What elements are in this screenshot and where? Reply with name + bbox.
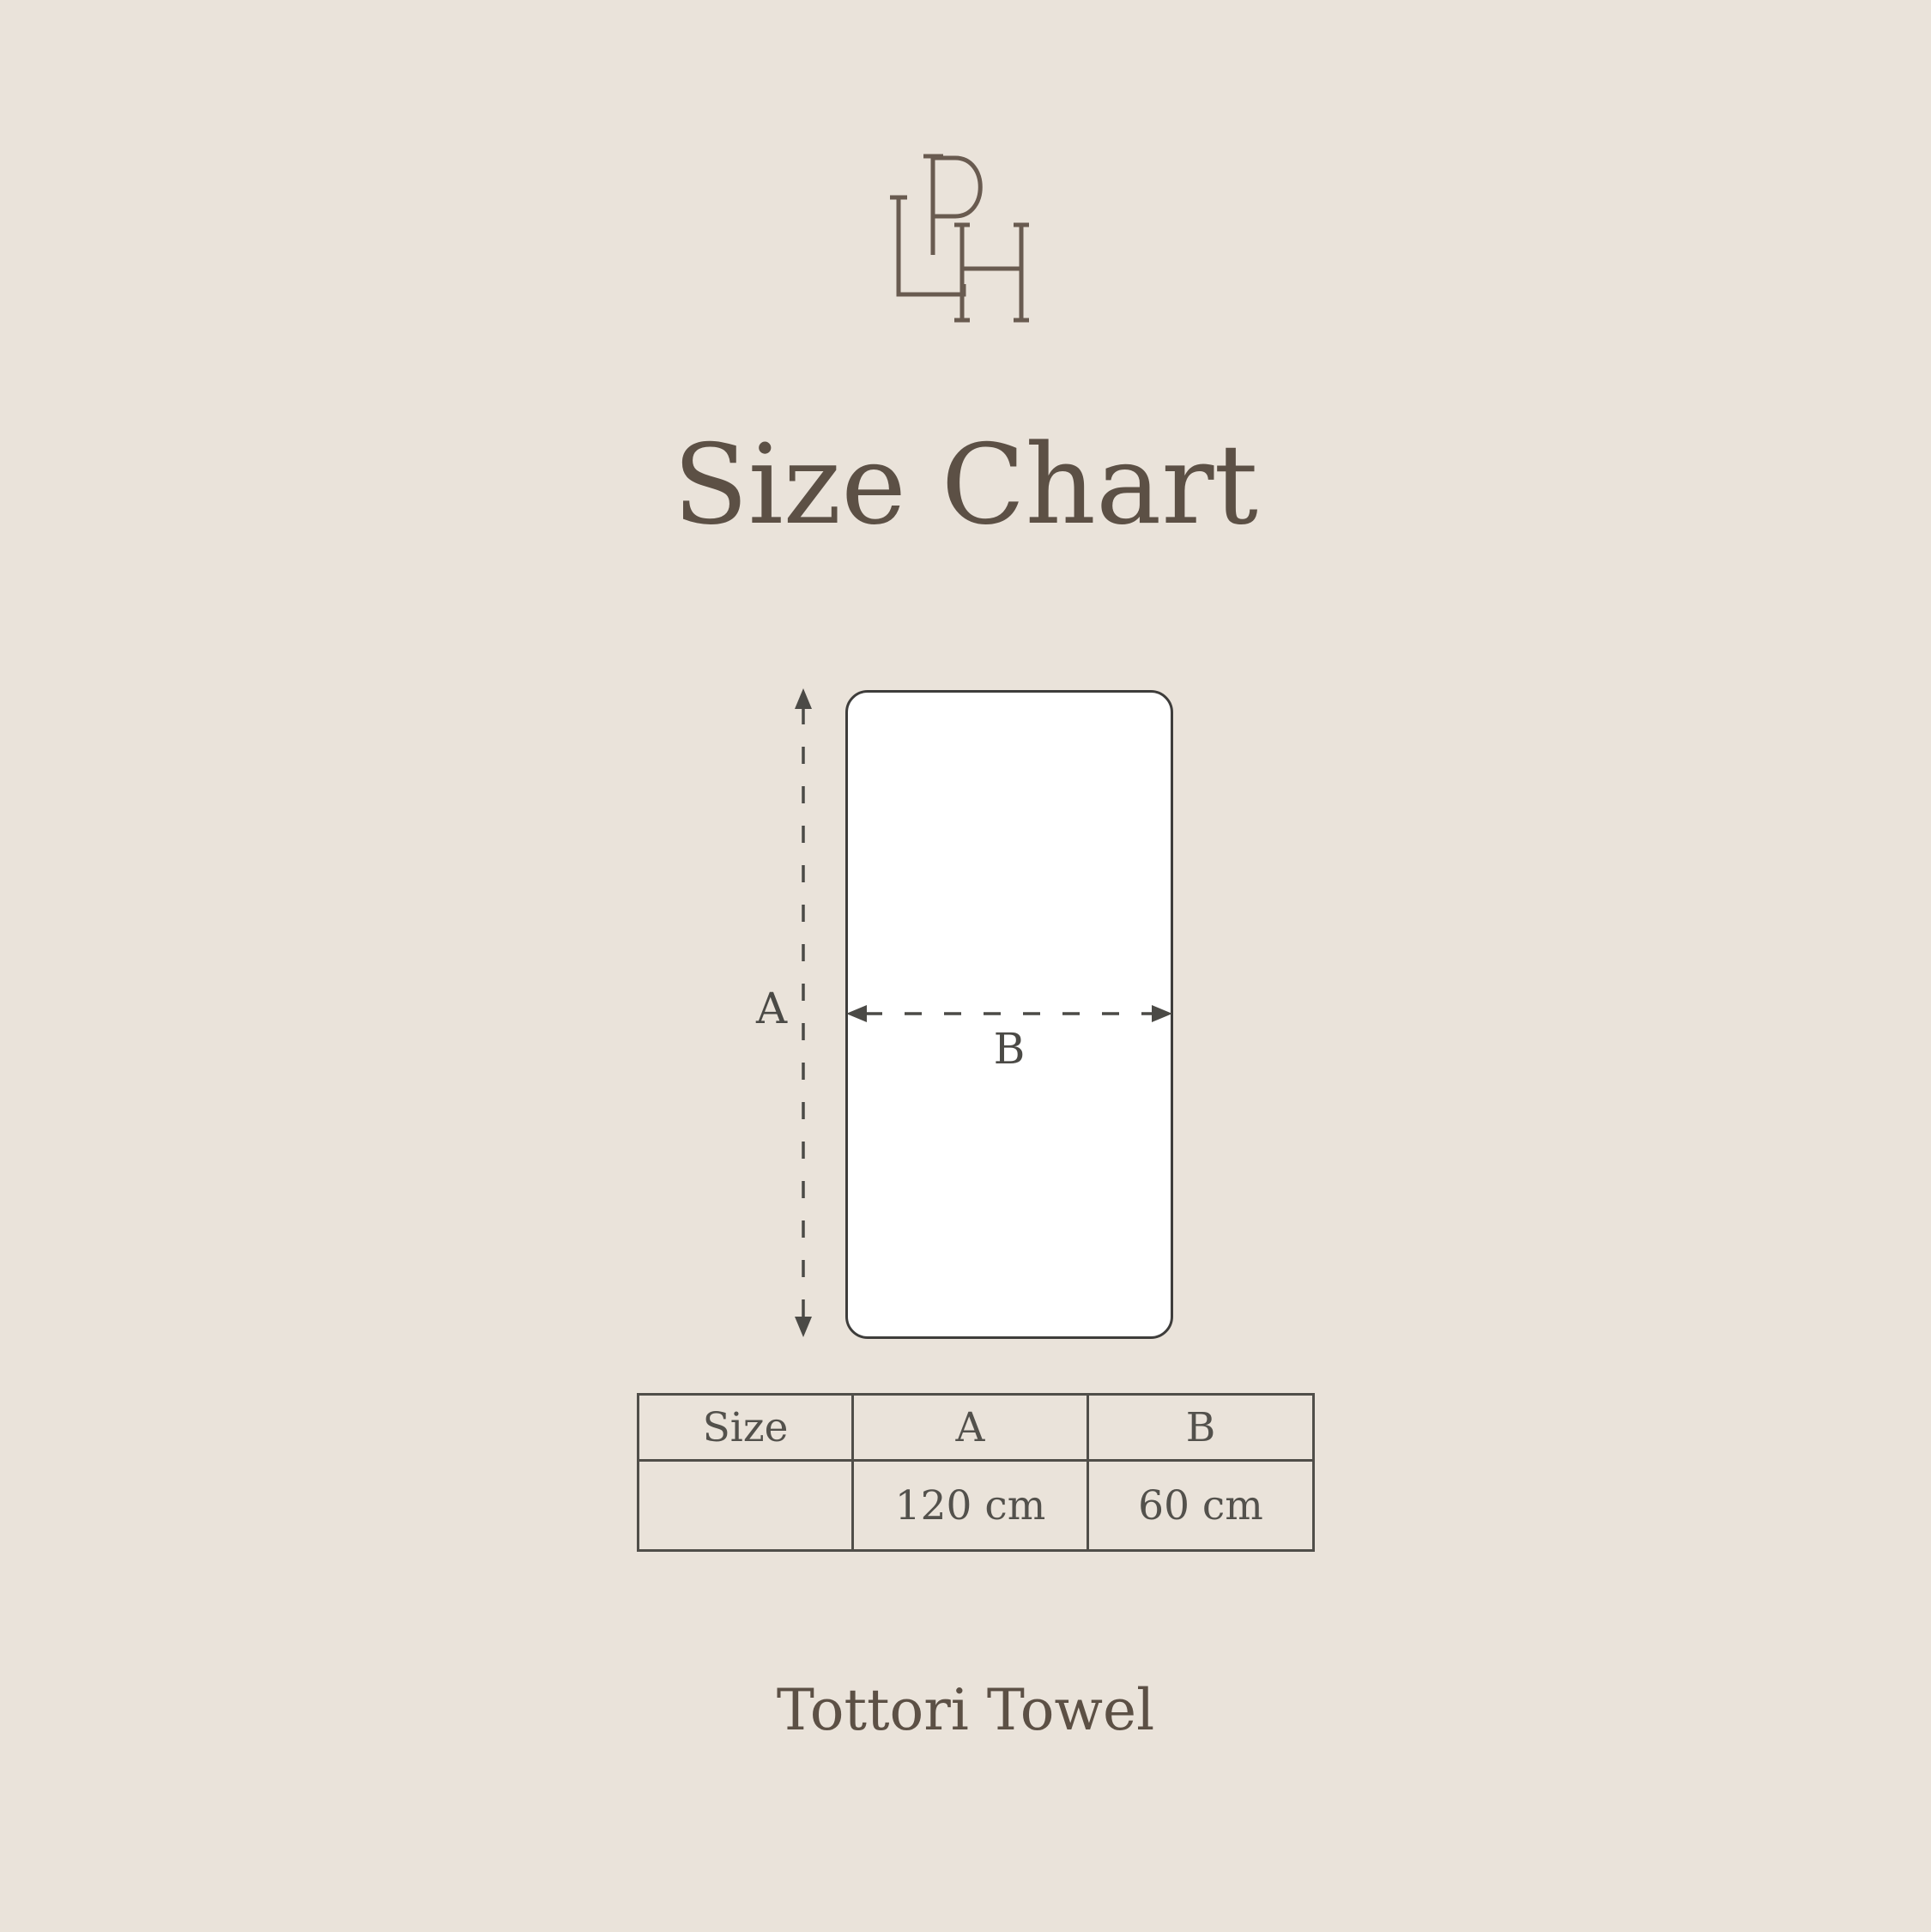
header-a: A [853, 1395, 1088, 1461]
dim-label-a: A [737, 987, 806, 1030]
cell-b-value: 60 cm [1088, 1461, 1314, 1551]
cell-a-value: 120 cm [853, 1461, 1088, 1551]
arrow-up-icon [795, 688, 812, 709]
size-table-header-row: Size A B [639, 1395, 1314, 1461]
arrow-down-icon [795, 1317, 812, 1337]
size-chart-page: Size Chart A B Size A B 120 cm 60 cm [0, 0, 1931, 1932]
product-name: Tottori Towel [0, 1681, 1931, 1741]
size-table-data-row: 120 cm 60 cm [639, 1461, 1314, 1551]
header-size: Size [639, 1395, 853, 1461]
arrow-left-icon [846, 1005, 867, 1022]
cell-size [639, 1461, 853, 1551]
page-title: Size Chart [0, 431, 1931, 541]
header-b: B [1088, 1395, 1314, 1461]
arrow-right-icon [1152, 1005, 1172, 1022]
size-table: Size A B 120 cm 60 cm [637, 1393, 1315, 1552]
logo-p-bowl [933, 158, 980, 216]
dim-label-b: B [975, 1027, 1044, 1070]
brand-logo-lph-icon [889, 153, 1044, 324]
